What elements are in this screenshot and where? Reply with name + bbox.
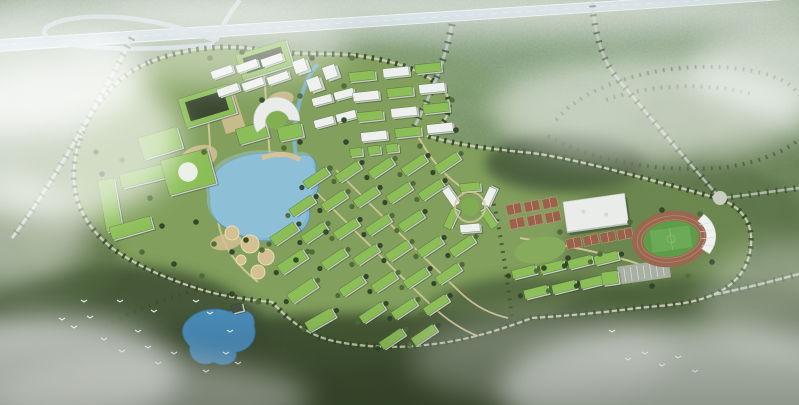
aerial-campus-rendering: Aerial bird's-eye architectural renderin… xyxy=(0,0,799,405)
scene-canvas xyxy=(0,0,799,405)
vignette xyxy=(0,0,799,405)
